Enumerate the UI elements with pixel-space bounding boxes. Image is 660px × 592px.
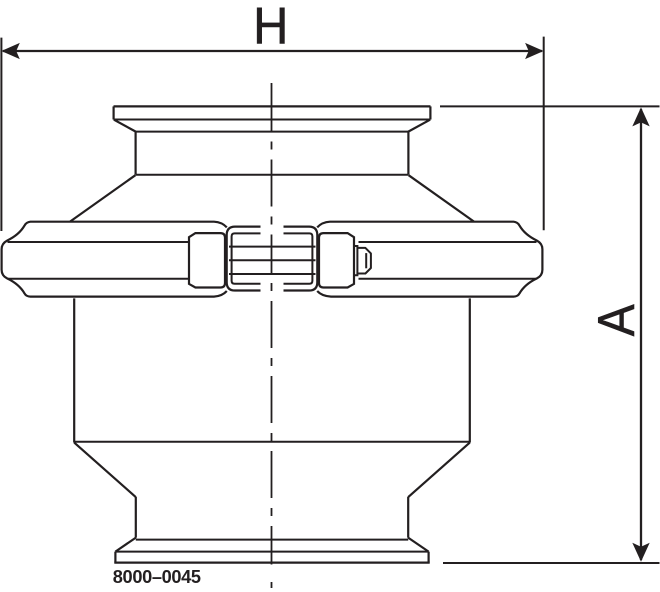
svg-text:A: A <box>587 304 645 337</box>
svg-text:H: H <box>253 0 288 54</box>
svg-text:8000–0045: 8000–0045 <box>113 567 201 587</box>
